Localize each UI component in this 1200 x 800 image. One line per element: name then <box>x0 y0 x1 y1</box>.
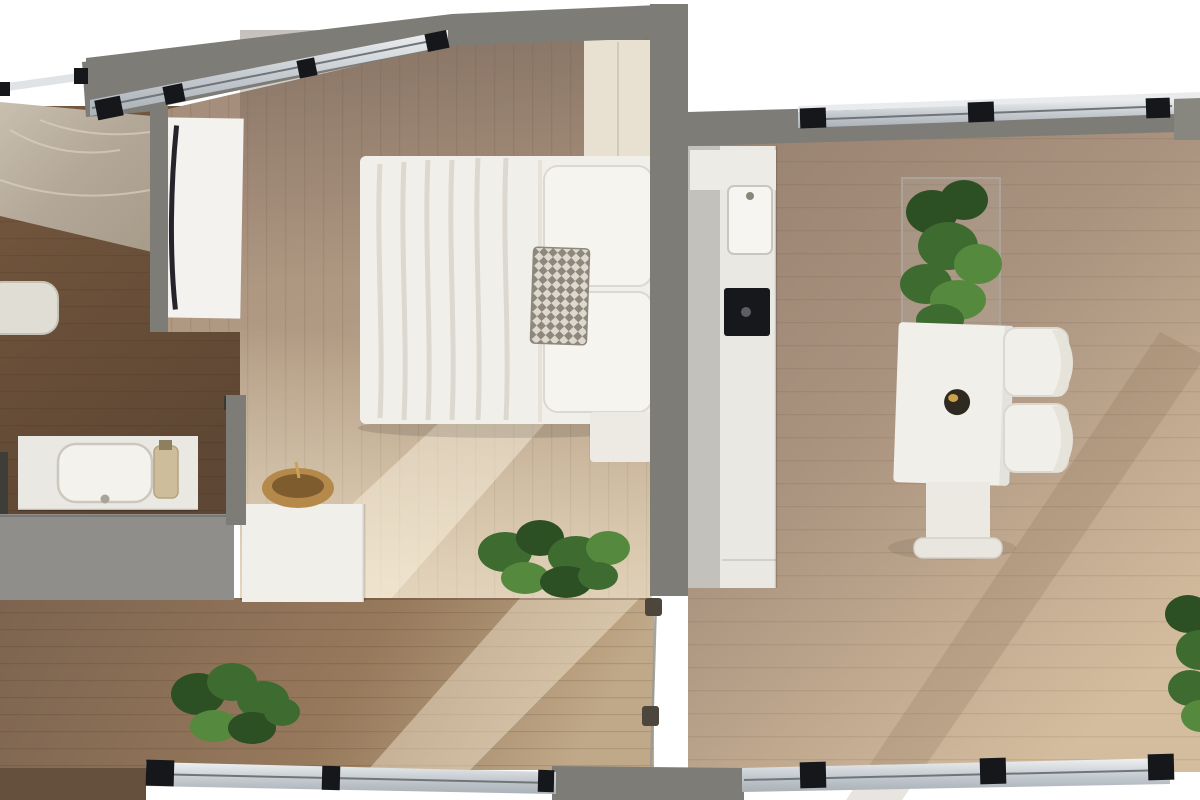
kitchen-counter-top <box>690 150 776 190</box>
window-mullion <box>1148 754 1175 781</box>
window-mullion <box>800 108 827 129</box>
wall-divider <box>650 4 688 596</box>
duvet-fold-line <box>505 158 507 420</box>
bedside-bench <box>590 412 652 462</box>
floorplan-stage <box>0 0 1200 800</box>
gray-storage-block <box>0 514 234 600</box>
duvet-fold-line <box>451 160 453 420</box>
plant-foliage <box>586 531 630 565</box>
dining-chair-bottom <box>1004 404 1073 472</box>
duvet-fold-line <box>477 158 479 420</box>
glass-door-hinge-top <box>645 598 662 616</box>
plant-foliage <box>940 180 988 220</box>
plant-foliage <box>954 244 1002 284</box>
duvet-fold-line <box>403 162 405 420</box>
window-mullion <box>538 770 555 792</box>
towel-rail <box>0 452 8 514</box>
wall-bottom-stub <box>552 766 744 800</box>
bed <box>358 156 658 438</box>
kitchen-back-cabinet <box>688 146 720 588</box>
duvet-fold-line <box>427 160 429 420</box>
window-mullion <box>296 57 317 78</box>
plant-foliage <box>578 562 618 590</box>
dining-chair-top <box>1004 328 1073 396</box>
window-mullion <box>0 82 10 96</box>
toilet <box>0 282 58 334</box>
throw-pillow <box>530 247 589 345</box>
dining-table <box>893 322 1015 486</box>
pedestal-stand <box>926 482 990 540</box>
window-mullion <box>980 758 1007 785</box>
bedroom-desk <box>242 504 364 602</box>
soap-bottle <box>154 446 178 498</box>
vanity-sink <box>58 444 152 502</box>
soap-bottle-cap <box>159 440 172 450</box>
bathroom-door <box>164 117 243 318</box>
plant-foliage <box>264 698 300 726</box>
window-mullion <box>74 68 88 84</box>
wall-bathroom-inner <box>150 110 168 332</box>
kitchen-faucet <box>746 192 754 200</box>
wall-bedroom-left-stub <box>226 395 246 525</box>
wall-corner-block-right <box>1174 94 1200 140</box>
window-mullion <box>968 102 995 123</box>
window-mullion <box>1146 98 1171 119</box>
floorplan-render <box>0 0 1200 800</box>
cooktop-knob <box>741 307 751 317</box>
duvet-fold-line <box>379 164 381 418</box>
glass-door-hinge-bottom <box>642 706 659 726</box>
window-mullion <box>146 760 175 787</box>
window-mullion <box>800 762 827 789</box>
window-mullion <box>322 766 341 790</box>
sink-faucet <box>101 495 110 504</box>
pedestal-base <box>914 538 1002 558</box>
hallway-floor-edge <box>0 768 146 800</box>
